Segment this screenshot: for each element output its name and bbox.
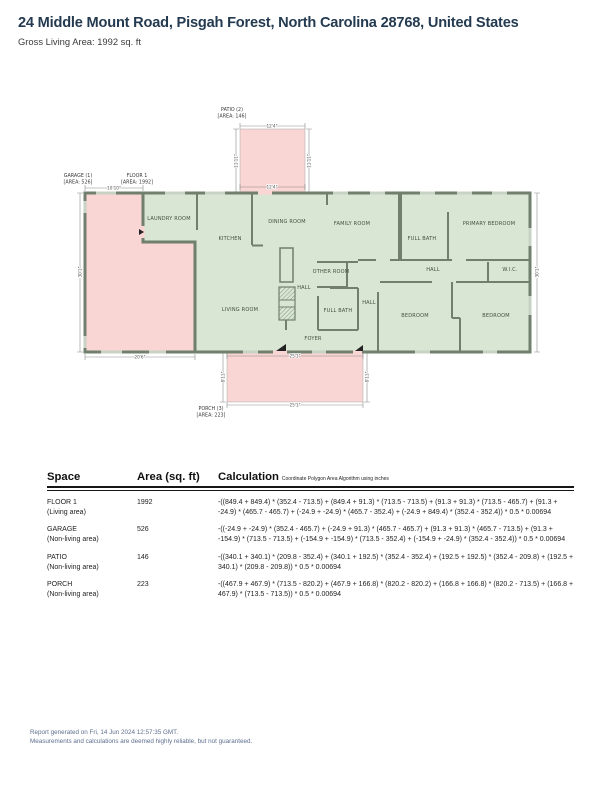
- room-label: FOYER: [304, 336, 322, 342]
- table-row-porch: PORCH (Non-living area) 223 -((467.9 + 4…: [47, 580, 574, 600]
- calculation-algorithm-note: Coordinate Polygon Area Algorithm using …: [282, 476, 389, 482]
- dimension-label: 25'1": [289, 403, 300, 408]
- calculation-cell: -((-24.9 + -24.9) * (352.4 - 465.7) + (-…: [218, 525, 574, 545]
- gross-living-area-subtitle: Gross Living Area: 1992 sq. ft: [18, 36, 141, 47]
- area-value-label: [AREA: 526]: [64, 180, 93, 186]
- area-cell: 146: [137, 553, 218, 573]
- column-header-calculation: CalculationCoordinate Polygon Area Algor…: [218, 471, 574, 483]
- table-row-patio: PATIO (Non-living area) 146 -((340.1 + 3…: [47, 553, 574, 573]
- table-row-garage: GARAGE (Non-living area) 526 -((-24.9 + …: [47, 525, 574, 545]
- calculation-cell: -((467.9 + 467.9) * (713.5 - 820.2) + (4…: [218, 580, 574, 600]
- room-label: BEDROOM: [482, 313, 510, 319]
- room-label: W.I.C.: [502, 267, 518, 273]
- dimension-label: 20'6": [134, 355, 145, 360]
- room-label: DINING ROOM: [268, 219, 306, 225]
- area-name-label: PATIO (2): [221, 107, 243, 113]
- room-label: PRIMARY BEDROOM: [463, 221, 516, 227]
- footer-generated-line: Report generated on Fri, 14 Jun 2024 12:…: [30, 729, 252, 738]
- room-label: FULL BATH: [324, 308, 353, 314]
- space-name: GARAGE: [47, 525, 137, 535]
- area-name-label: PORCH (3): [198, 406, 223, 412]
- dimension-label: 11'11": [307, 154, 312, 168]
- dimension-label: 30'1": [78, 266, 83, 277]
- table-header-row: Space Area (sq. ft) CalculationCoordinat…: [47, 471, 574, 483]
- dimension-label: 30'1": [535, 266, 540, 277]
- floor-plan: PATIO (2)[AREA: 146]GARAGE (1)[AREA: 526…: [0, 90, 612, 430]
- dimension-label: 8'11": [365, 371, 370, 382]
- area-value-label: [AREA: 223]: [197, 413, 226, 419]
- dimension-label: 12'4": [266, 124, 277, 129]
- area-value-label: [AREA: 1992]: [121, 180, 153, 186]
- column-header-area: Area (sq. ft): [137, 471, 218, 483]
- area-value-label: [AREA: 146]: [218, 114, 247, 120]
- space-type: (Non-living area): [47, 590, 137, 600]
- room-label: FAMILY ROOM: [334, 221, 370, 227]
- calculation-cell: -((849.4 + 849.4) * (352.4 - 713.5) + (8…: [218, 498, 574, 518]
- space-cell: FLOOR 1 (Living area): [47, 498, 137, 518]
- area-name-label: GARAGE (1): [64, 173, 93, 179]
- space-name: FLOOR 1: [47, 498, 137, 508]
- footer-disclaimer-line: Measurements and calculations are deemed…: [30, 738, 252, 747]
- space-cell: PORCH (Non-living area): [47, 580, 137, 600]
- area-cell: 526: [137, 525, 218, 545]
- table-row-floor1: FLOOR 1 (Living area) 1992 -((849.4 + 84…: [47, 498, 574, 518]
- space-name: PATIO: [47, 553, 137, 563]
- report-footer: Report generated on Fri, 14 Jun 2024 12:…: [30, 729, 252, 747]
- page-title: 24 Middle Mount Road, Pisgah Forest, Nor…: [18, 15, 598, 31]
- area-cell: 223: [137, 580, 218, 600]
- dimension-label: 12'4": [266, 185, 277, 190]
- calculation-cell: -((340.1 + 340.1) * (209.8 - 352.4) + (3…: [218, 553, 574, 573]
- room-label: HALL: [426, 267, 440, 273]
- space-cell: GARAGE (Non-living area): [47, 525, 137, 545]
- room-label: HALL: [297, 285, 311, 291]
- space-type: (Non-living area): [47, 535, 137, 545]
- room-label: KITCHEN: [218, 236, 241, 242]
- area-name-label: FLOOR 1: [127, 173, 148, 179]
- space-type: (Living area): [47, 508, 137, 518]
- space-type: (Non-living area): [47, 563, 137, 573]
- room-label: LIVING ROOM: [222, 307, 258, 313]
- space-name: PORCH: [47, 580, 137, 590]
- space-cell: PATIO (Non-living area): [47, 553, 137, 573]
- room-label: HALL: [362, 300, 376, 306]
- porch-area: [227, 352, 363, 402]
- room-label: OTHER ROOM: [313, 269, 350, 275]
- dimension-label: 8'11": [221, 371, 226, 382]
- dimension-label: 25'1": [289, 354, 300, 359]
- patio-area: [240, 129, 305, 193]
- table-header-rule: [47, 486, 574, 491]
- room-label: BEDROOM: [401, 313, 429, 319]
- room-label: LAUNDRY ROOM: [147, 216, 190, 222]
- room-label: FULL BATH: [408, 236, 437, 242]
- column-header-space: Space: [47, 471, 137, 483]
- areas-table: Space Area (sq. ft) CalculationCoordinat…: [47, 471, 574, 600]
- column-header-calculation-label: Calculation: [218, 471, 279, 483]
- dimension-label: 11'11": [234, 154, 239, 168]
- report-page: 24 Middle Mount Road, Pisgah Forest, Nor…: [0, 0, 612, 792]
- dimension-label: 10'10": [107, 186, 121, 191]
- area-cell: 1992: [137, 498, 218, 518]
